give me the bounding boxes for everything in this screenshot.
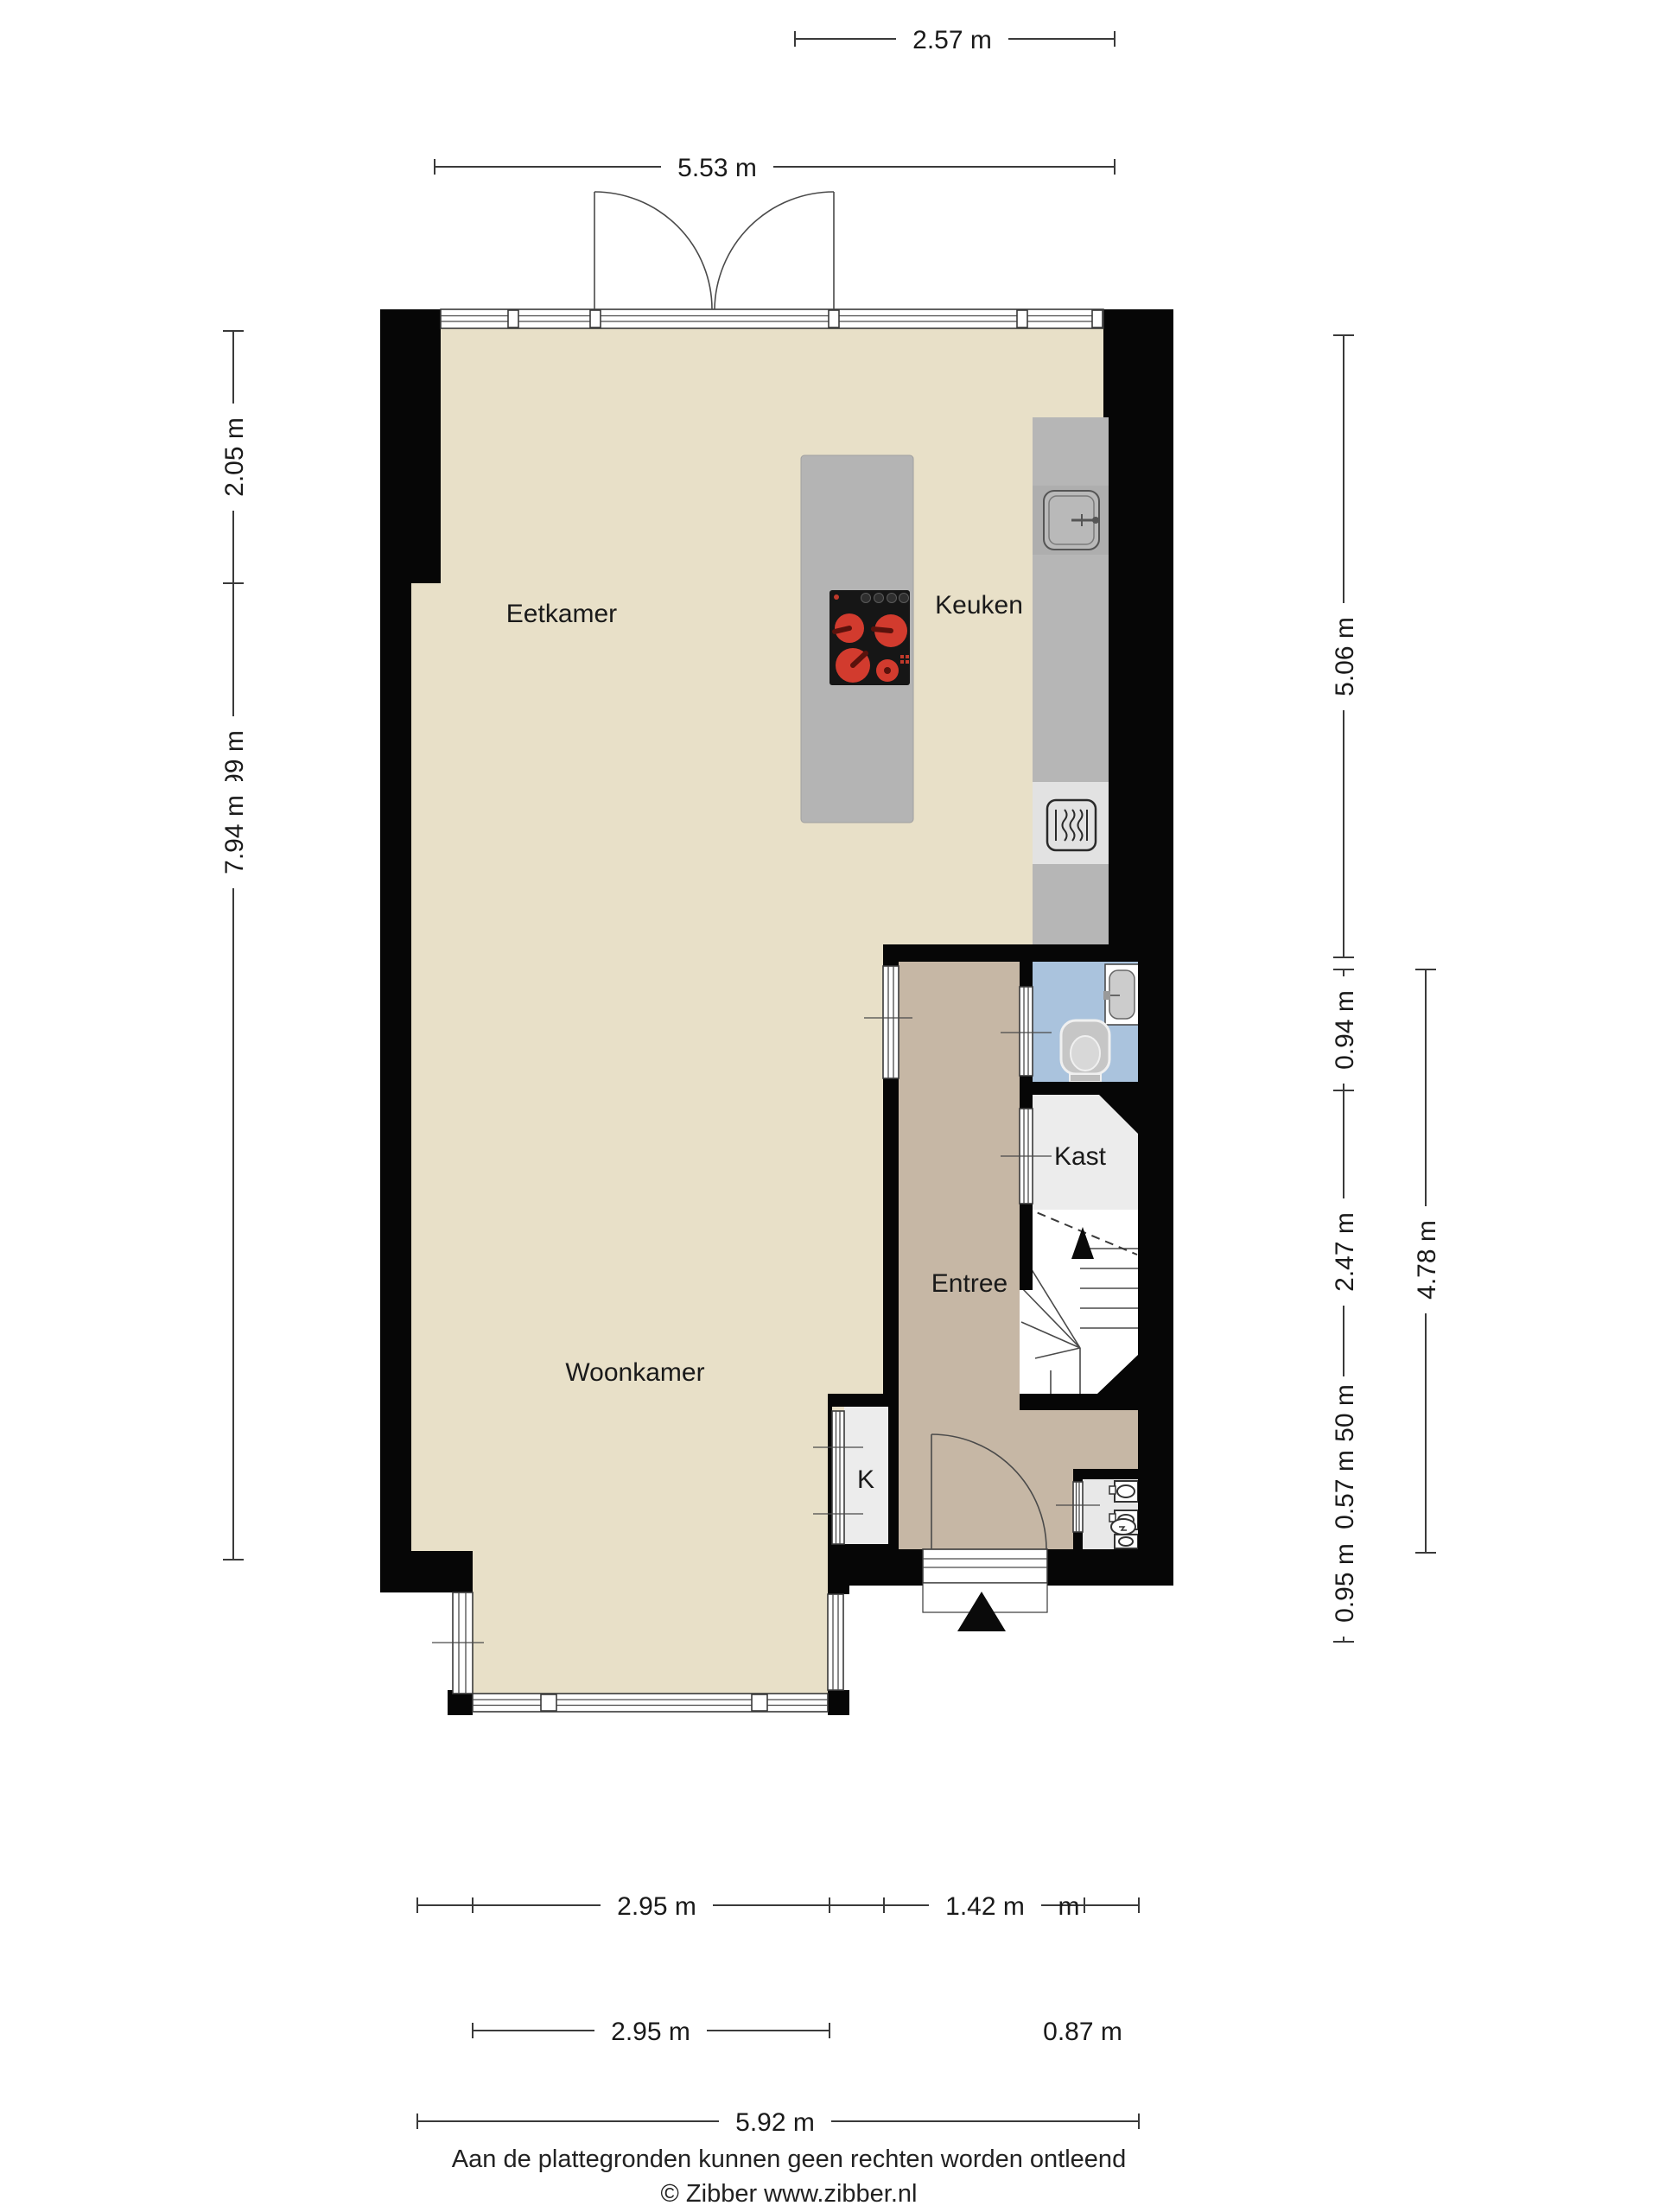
dim-794: 7.94 m: [220, 795, 249, 874]
wall-kcloset-top: [828, 1394, 899, 1407]
basin-icon: [1103, 964, 1139, 1025]
dimensions-bottom: 2.95 m 1.42 m m 2.95 m 0.87 m 5.92 m: [417, 1891, 1139, 2138]
window-bay-bottom: [473, 1694, 828, 1712]
wall-kcloset-bottom: [828, 1544, 899, 1555]
wall-hall-a: [1020, 962, 1033, 987]
wall-partition-top: [883, 944, 899, 966]
sink-icon: [1044, 491, 1099, 550]
wall-right-lower: [1138, 962, 1173, 1586]
room-label-kast: Kast: [1054, 1142, 1107, 1171]
dim-257: 2.57 m: [912, 26, 992, 54]
wall-left: [380, 583, 411, 1551]
dim-094: 0.94 m: [1331, 990, 1359, 1070]
wall-kcloset-right: [888, 1407, 899, 1555]
wall-bottomleft-corner: [380, 1551, 473, 1592]
footer: Aan de plattegronden kunnen geen rechten…: [452, 2145, 1126, 2208]
floorplan-page: Eetkamer Keuken Woonkamer Entree Kast K …: [0, 0, 1659, 2212]
dimensions-left: 2.05 m 9.99 m 7.94 m: [218, 331, 249, 1560]
wall-left-top: [380, 309, 441, 583]
cooktop-icon: [829, 590, 910, 685]
double-door: [594, 192, 834, 309]
floor-living-mid: [411, 583, 1109, 944]
dim-087: 0.87 m: [1043, 2018, 1122, 2046]
dimensions-top: 2.57 m 5.53 m: [435, 24, 1115, 183]
wall-topright-corner: [1103, 309, 1173, 417]
dim-592: 5.92 m: [735, 2108, 815, 2137]
dim-295b: 2.95 m: [611, 2018, 690, 2046]
wall-bay-corner-right: [828, 1690, 849, 1715]
wall-toilet-bottom: [1020, 1082, 1173, 1095]
dim-stray-m: m: [1058, 1892, 1080, 1921]
room-label-k: K: [857, 1465, 874, 1494]
floor-entree-door: [899, 1469, 1073, 1551]
dim-295a: 2.95 m: [617, 1892, 696, 1921]
wall-bay-right-block: [828, 1549, 849, 1594]
dim-095: 0.95 m: [1331, 1543, 1359, 1623]
floor-woonkamer: [411, 944, 883, 1551]
wall-right-upper: [1109, 417, 1173, 962]
dim-057: 0.57 m: [1331, 1450, 1359, 1529]
meter-icon: [1115, 1535, 1138, 1548]
toilet-icon: [1061, 1020, 1109, 1082]
room-label-keuken: Keuken: [935, 591, 1023, 620]
dim-506: 5.06 m: [1331, 617, 1359, 696]
dim-247: 2.47 m: [1331, 1212, 1359, 1292]
wall-meter-top: [1073, 1469, 1139, 1479]
floor-eetkamer: [435, 327, 1109, 583]
wall-hall-c: [1020, 1204, 1033, 1290]
wall-front-right: [1047, 1549, 1173, 1586]
door-arc: [594, 192, 712, 309]
room-label-eetkamer: Eetkamer: [506, 600, 617, 628]
floorplan-canvas: Eetkamer Keuken Woonkamer Entree Kast K …: [0, 0, 1659, 2212]
dim-142: 1.42 m: [945, 1892, 1025, 1921]
wall-kitchen-entree: [888, 944, 1173, 962]
wall-partition: [883, 1078, 899, 1394]
dim-553: 5.53 m: [677, 154, 757, 182]
room-label-entree: Entree: [931, 1269, 1007, 1298]
dim-478: 4.78 m: [1413, 1220, 1441, 1300]
floor-bay: [453, 1551, 843, 1694]
meter-icon: [1109, 1510, 1138, 1535]
footer-copyright: © Zibber www.zibber.nl: [661, 2180, 918, 2208]
floor-entree-corridor: [899, 962, 1020, 1410]
wall-meter-left-low: [1073, 1532, 1083, 1551]
door-arc: [715, 192, 834, 309]
footer-disclaimer: Aan de plattegronden kunnen geen rechten…: [452, 2145, 1126, 2173]
window-top: [441, 309, 1103, 328]
room-label-woonkamer: Woonkamer: [565, 1358, 704, 1387]
wall-stairs-bottom: [1020, 1394, 1097, 1410]
dim-205: 2.05 m: [220, 417, 249, 497]
dimensions-right: 5.06 m 0.94 m 2.47 m 0.50 m 0.57 m 0.95 …: [1328, 335, 1441, 1642]
floor-entree-lower: [899, 1410, 1139, 1469]
window-bay-right: [828, 1594, 843, 1690]
